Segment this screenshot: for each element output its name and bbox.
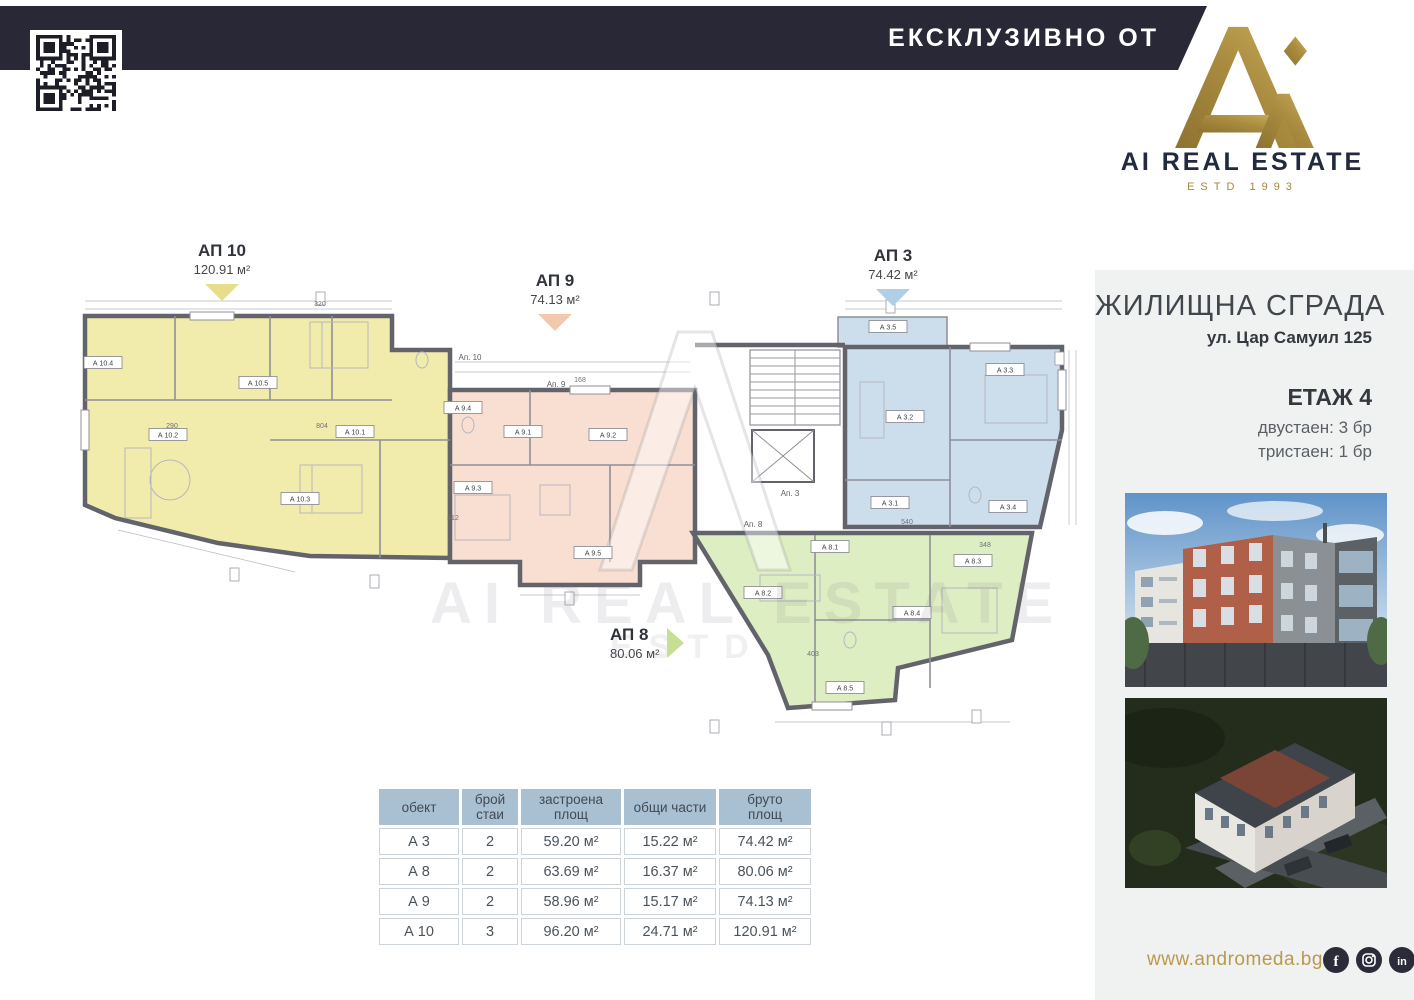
brand-wordmark: AI REAL ESTATE xyxy=(1105,148,1380,177)
pointer-right-icon xyxy=(667,628,684,658)
panel-footer: www.andromeda.bg f in xyxy=(1095,946,1414,974)
apartment-ap10-region xyxy=(85,316,450,558)
callout-ap9: АП 9 74.13 м² xyxy=(510,271,600,331)
brand-estd: ESTD 1993 xyxy=(1105,181,1380,193)
svg-text:412: 412 xyxy=(447,515,459,522)
svg-text:540: 540 xyxy=(901,519,913,526)
pointer-down-icon xyxy=(205,284,239,301)
svg-text:Ап. 3: Ап. 3 xyxy=(781,489,800,498)
callout-ap8: АП 8 80.06 м² xyxy=(610,625,684,661)
table-row: А 82 63.69 м²16.37 м² 80.06 м² xyxy=(379,858,811,885)
svg-text:А 9.5: А 9.5 xyxy=(585,551,601,558)
floor-label: ЕТАЖ 4 xyxy=(1095,384,1414,411)
svg-text:А 8.4: А 8.4 xyxy=(904,611,920,618)
svg-text:А 9.1: А 9.1 xyxy=(515,430,531,437)
svg-text:403: 403 xyxy=(807,651,819,658)
svg-text:А 8.1: А 8.1 xyxy=(822,545,838,552)
table-header-row: обект брой стаи застроена площ общи част… xyxy=(379,789,811,825)
svg-text:А 3.1: А 3.1 xyxy=(882,501,898,508)
brand-logo: AI REAL ESTATE ESTD 1993 xyxy=(1105,22,1380,193)
svg-text:А 10.1: А 10.1 xyxy=(345,430,365,437)
col-gross-area: бруто площ xyxy=(719,789,811,825)
floor-plan: А 10.4 А 10.5 А 10.2 А 10.1 А 10.3 А 9.4… xyxy=(70,290,1080,750)
areas-table: обект брой стаи застроена площ общи част… xyxy=(376,786,814,948)
col-object: обект xyxy=(379,789,459,825)
svg-text:А 8.3: А 8.3 xyxy=(965,559,981,566)
svg-text:А 10.5: А 10.5 xyxy=(248,381,268,388)
col-built-area: застроена площ xyxy=(521,789,621,825)
building-photo-aerial xyxy=(1125,698,1387,888)
project-title: ЖИЛИЩНА СГРАДА xyxy=(1095,290,1414,323)
col-common-parts: общи части xyxy=(624,789,716,825)
svg-text:348: 348 xyxy=(979,542,991,549)
svg-text:320: 320 xyxy=(314,301,326,308)
qr-code-icon xyxy=(36,35,116,111)
pointer-down-icon xyxy=(538,314,572,331)
qr-code xyxy=(30,30,122,116)
svg-text:А 10.2: А 10.2 xyxy=(158,433,178,440)
top-banner: ЕКСКЛУЗИВНО ОТ xyxy=(0,6,1207,70)
svg-text:А 9.3: А 9.3 xyxy=(465,486,481,493)
svg-text:Ап. 10: Ап. 10 xyxy=(458,353,482,362)
svg-text:А 10.3: А 10.3 xyxy=(290,497,310,504)
linkedin-icon[interactable]: in xyxy=(1389,947,1414,973)
col-rooms: брой стаи xyxy=(462,789,518,825)
svg-text:А 9.2: А 9.2 xyxy=(600,433,616,440)
svg-text:А 3.5: А 3.5 xyxy=(880,325,896,332)
svg-text:Ап. 9: Ап. 9 xyxy=(547,380,566,389)
svg-text:А 8.5: А 8.5 xyxy=(837,686,853,693)
instagram-icon[interactable] xyxy=(1356,947,1382,973)
callout-ap3: АП 3 74.42 м² xyxy=(848,246,938,306)
brochure-page: ЕКСКЛУЗИВНО ОТ AI REAL ESTATE ESTD 1993 xyxy=(0,0,1414,1000)
svg-text:290: 290 xyxy=(166,423,178,430)
svg-text:А 3.3: А 3.3 xyxy=(997,368,1013,375)
svg-text:in: in xyxy=(1397,956,1407,968)
pointer-down-icon xyxy=(876,289,910,306)
table-row: А 103 96.20 м²24.71 м² 120.91 м² xyxy=(379,918,811,945)
unit-mix: двустаен: 3 бр тристаен: 1 бр xyxy=(1095,416,1414,464)
svg-text:А 10.4: А 10.4 xyxy=(93,361,113,368)
project-address: ул. Цар Самуил 125 xyxy=(1095,328,1414,348)
svg-text:А 3.2: А 3.2 xyxy=(897,415,913,422)
website-link[interactable]: www.andromeda.bg xyxy=(1147,949,1323,971)
building-photo-street xyxy=(1125,493,1387,687)
svg-text:168: 168 xyxy=(574,377,586,384)
svg-text:А 9.4: А 9.4 xyxy=(455,406,471,413)
facebook-icon[interactable]: f xyxy=(1323,947,1349,973)
right-panel: ЖИЛИЩНА СГРАДА ул. Цар Самуил 125 ЕТАЖ 4… xyxy=(1095,270,1414,1000)
callout-ap10: АП 10 120.91 м² xyxy=(177,241,267,301)
svg-text:А 8.2: А 8.2 xyxy=(755,591,771,598)
brand-monogram-icon xyxy=(1168,22,1318,148)
svg-text:А 3.4: А 3.4 xyxy=(1000,505,1016,512)
table-row: А 32 59.20 м²15.22 м² 74.42 м² xyxy=(379,828,811,855)
table-row: А 92 58.96 м²15.17 м² 74.13 м² xyxy=(379,888,811,915)
svg-text:Ап. 8: Ап. 8 xyxy=(744,520,763,529)
svg-text:804: 804 xyxy=(316,423,328,430)
